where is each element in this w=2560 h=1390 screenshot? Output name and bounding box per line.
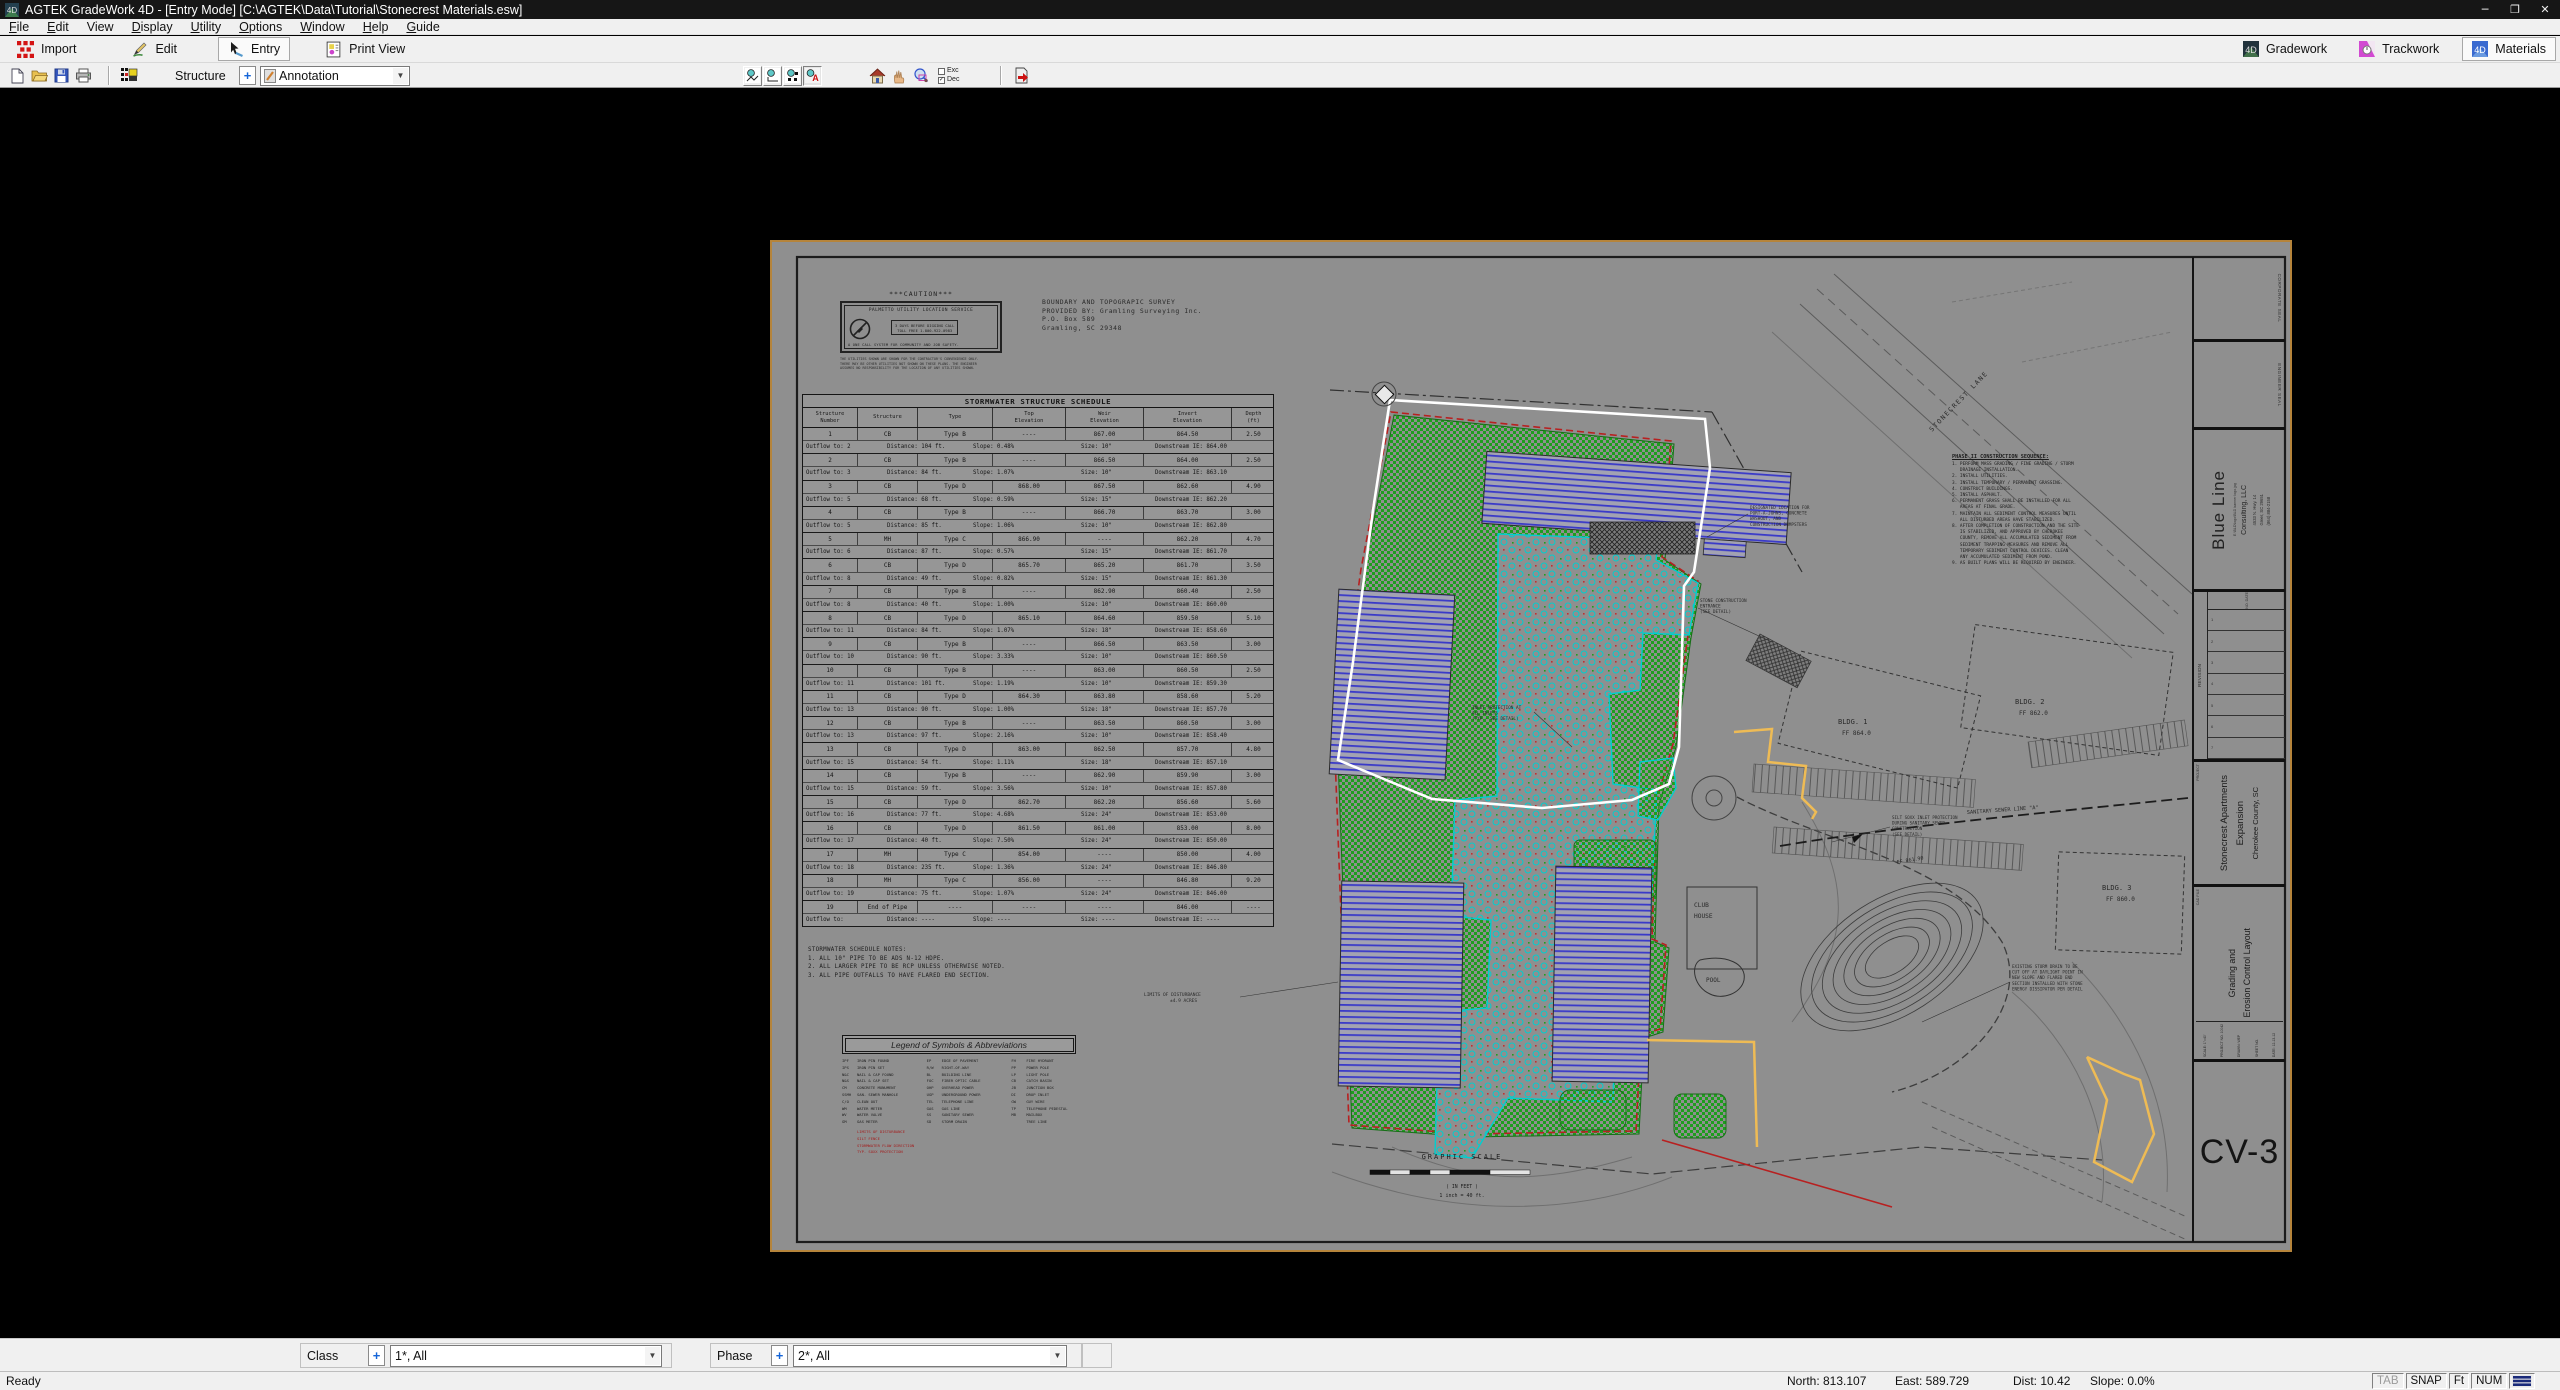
agtek-gradework-window: 4D AGTEK GradeWork 4D - [Entry Mode] [C:… [0,0,2560,1390]
structure-row: 11 CB Type D 864.30 863.80 858.60 5.20 [803,691,1273,704]
chevron-down-icon[interactable]: ▼ [393,68,408,84]
sheet-title-box: CAD FILE Grading and Erosion Control Lay… [2194,887,2285,1062]
menu-item[interactable]: Utility [182,19,231,35]
svg-text:±4.9 ACRES: ±4.9 ACRES [1170,998,1197,1004]
phase2-sequence-note: PHASE II CONSTRUCTION SEQUENCE: 1. PERFO… [1952,454,2192,567]
print-view-button[interactable]: Print View [316,37,414,61]
schedule-title: STORMWATER STRUCTURE SCHEDULE [803,395,1273,408]
outflow-row: Outflow to: 5 Distance: 85 ft. Slope: 1.… [803,520,1273,533]
svg-text:A: A [812,73,819,83]
bldg2-label: BLDG. 2 [2015,698,2045,706]
trackwork-button[interactable]: Trackwork [2350,37,2448,61]
svg-text:HOUSE: HOUSE [1694,913,1713,920]
schedule-header: StructureNumberStructureTypeTopElevation… [803,408,1273,428]
road-label: STONECREST LANE [1928,369,1990,433]
dec-checkbox[interactable]: ✓ [938,77,945,84]
phase-label: Phase [717,1344,752,1367]
chevron-down-icon[interactable]: ▼ [645,1347,660,1365]
window-title: AGTEK GradeWork 4D - [Entry Mode] [C:\AG… [25,3,522,17]
outflow-row: Outflow to: 19 Distance: 75 ft. Slope: 1… [803,888,1273,901]
outflow-row: Outflow to: 11 Distance: 84 ft. Slope: 1… [803,625,1273,638]
exc-dec-toggle[interactable]: Exc ✓Dec [938,67,959,84]
bldg2-ff: FF 862.0 [2019,710,2048,717]
structure-row: 15 CB Type D 862.70 862.20 856.60 5.60 [803,796,1273,809]
svg-text:GRAPHIC SCALE: GRAPHIC SCALE [1422,1153,1503,1161]
view-lines-button[interactable] [743,66,762,86]
view-corner-button[interactable] [763,66,782,86]
add-phase-button[interactable]: + [771,1345,788,1366]
outflow-row: Outflow to: 2 Distance: 104 ft. Slope: 0… [803,441,1273,454]
svg-text:CUT OFF AT DAYLIGHT POINT IN: CUT OFF AT DAYLIGHT POINT IN [2012,970,2083,975]
home-view-button[interactable] [866,65,888,86]
zoom-annotation-icon: A [805,68,820,83]
menu-item[interactable]: View [78,19,123,35]
storm-cut-note: EXISTING STORM DRAIN TO BE [2012,964,2078,969]
structure-row: 17 MH Type C 854.00 ---- 850.00 4.00 [803,849,1273,862]
svg-text:ENTRANCE: ENTRANCE [1700,604,1721,610]
legend-title: Legend of Symbols & Abbreviations [845,1038,1074,1052]
phase-value: 2*, All [798,1349,830,1363]
class-phase-bar: Class + 1*, All ▼ Phase + 2*, All ▼ [0,1338,2560,1371]
project-location: Cherokee County, SC [2251,787,2260,859]
trackwork-icon [2359,41,2375,57]
menu-item[interactable]: Display [123,19,182,35]
svg-text:(SEE DETAIL): (SEE DETAIL) [1700,609,1731,615]
svg-text:1 inch = 40 ft.: 1 inch = 40 ft. [1439,1193,1484,1199]
structure-row: 8 CB Type D 865.10 864.60 859.50 5.10 [803,612,1273,625]
svg-text:4D: 4D [2475,45,2487,55]
edit-button[interactable]: Edit [123,37,186,61]
title-block: CORPORATE SEAL ENGINEER SEAL Blue Line E… [2192,257,2285,1242]
outflow-row: Outflow to: 15 Distance: 54 ft. Slope: 1… [803,757,1273,770]
outflow-row: Outflow to: 3 Distance: 84 ft. Slope: 1.… [803,467,1273,480]
sheet-number: CV-3 [2200,1133,2280,1172]
add-structure-button[interactable]: + [239,66,256,85]
mode-toolbar: Import Edit Entry Print View 4D Gradewor… [0,36,2560,63]
menu-item[interactable]: Help [354,19,398,35]
materials-icon: 4D [2472,41,2488,57]
structure-row: 3 CB Type D 868.00 867.50 862.60 4.90 [803,481,1273,494]
pencil-icon [132,41,148,57]
structure-row: 2 CB Type B ---- 866.50 864.00 2.50 [803,454,1273,467]
limits-note: LIMITS OF DISTURBANCE [1144,992,1201,998]
open-file-button[interactable] [28,65,50,86]
outflow-row: Outflow to: 8 Distance: 40 ft. Slope: 1.… [803,599,1273,612]
class-value: 1*, All [395,1349,427,1363]
structure-row: 9 CB Type B ---- 866.50 863.50 3.00 [803,638,1273,651]
units-toggle[interactable]: Ft [2449,1373,2469,1389]
phase-combobox[interactable]: 2*, All ▼ [793,1345,1067,1367]
outflow-row: Outflow to: Distance: ---- Slope: ---- S… [803,914,1273,927]
menu-bar: FileEditViewDisplayUtilityOptionsWindowH… [0,19,2560,35]
svg-text:4D: 4D [2245,45,2257,55]
project-box: PROJECT Stonecrest Apartments Expansion … [2194,762,2285,887]
view-annotation-button[interactable]: A [803,66,822,86]
maximize-button[interactable]: ❐ [2500,0,2530,19]
stormwater-schedule-table: STORMWATER STRUCTURE SCHEDULE StructureN… [802,394,1274,927]
svg-text:CONSTRUCTION DUMPSTERS: CONSTRUCTION DUMPSTERS [1750,522,1807,528]
firm-name: Blue Line [2209,470,2229,550]
zoom-points-icon [785,68,800,83]
printer-icon [75,68,92,83]
export-button[interactable] [1010,65,1032,86]
corporate-seal-box: CORPORATE SEAL [2194,257,2285,342]
outflow-row: Outflow to: 8 Distance: 49 ft. Slope: 0.… [803,573,1273,586]
title-bar: 4D AGTEK GradeWork 4D - [Entry Mode] [C:… [0,0,2560,19]
toolbar-separator [1000,66,1002,85]
drawing-canvas[interactable]: STONECREST LANE SANITARY SEWER LINE "A" … [0,88,2560,1338]
contour-lines [1775,853,2009,1061]
status-north: North: 813.107 [1787,1372,1866,1390]
annotation-pen-icon [264,69,276,83]
outflow-row: Outflow to: 13 Distance: 90 ft. Slope: 1… [803,704,1273,717]
materials-button[interactable]: 4D Materials [2462,37,2556,61]
open-folder-icon [31,68,48,83]
structure-row: 6 CB Type D 865.70 865.20 861.70 3.50 [803,559,1273,572]
bldg3-label: BLDG. 3 [2102,884,2132,892]
structure-row: 13 CB Type D 863.00 862.50 857.70 4.80 [803,743,1273,756]
stone-entrance-pad [1746,634,1811,688]
survey-note: BOUNDARY AND TOPOGRAPIC SURVEYPROVIDED B… [1042,298,1202,332]
legend-block: Legend of Symbols & Abbreviations IPFIRO… [842,1035,1090,1156]
silt-fence-line [1662,1140,1892,1207]
pan-button[interactable] [888,65,910,86]
bldg1-label: BLDG. 1 [1838,718,1868,726]
svg-text:ALL INLETS: ALL INLETS [1472,711,1498,717]
designated-note: DESIGNATED LOCATION FOR [1750,505,1810,511]
parking-stalls [1752,720,2188,870]
svg-text:CONSTRUCTION: CONSTRUCTION [1892,826,1923,831]
exc-checkbox[interactable] [938,68,945,75]
structure-row: 18 MH Type C 856.00 ---- 846.80 9.20 [803,875,1273,888]
svg-text:NEW SLOPE AND FLARED END: NEW SLOPE AND FLARED END [2012,975,2073,980]
svg-text:(SEE DETAIL): (SEE DETAIL) [1892,832,1922,837]
status-bar: Ready North: 813.107 East: 589.729 Dist:… [0,1371,2560,1390]
outflow-row: Outflow to: 6 Distance: 87 ft. Slope: 0.… [803,546,1273,559]
export-page-icon [1013,67,1030,84]
plan-sheet: STONECREST LANE SANITARY SEWER LINE "A" … [770,240,2292,1252]
clubhouse-label: CLUB [1694,902,1709,909]
structure-row: 5 MH Type C 866.90 ---- 862.20 4.70 [803,533,1273,546]
sheet-number-box: CV-3 [2194,1062,2285,1242]
crosshatch-pad [1590,522,1695,554]
view-points-button[interactable] [783,66,802,86]
menu-item[interactable]: Edit [38,19,78,35]
print-view-icon [325,41,342,58]
close-button[interactable]: ✕ [2530,0,2560,19]
structure-row: 7 CB Type B ---- 862.90 860.40 2.50 [803,586,1273,599]
svg-text:SECTION INSTALLED WITH STONE: SECTION INSTALLED WITH STONE [2012,981,2083,986]
structure-row: 16 CB Type D 861.50 861.00 853.00 8.00 [803,822,1273,835]
import-button[interactable]: Import [8,37,85,61]
svg-text:4D: 4D [7,6,17,15]
layer-combobox[interactable]: Annotation ▼ [260,66,410,86]
toolbar-separator [108,66,110,85]
tab-toggle[interactable]: TAB [2372,1373,2404,1389]
new-file-icon [10,68,25,84]
schedule-notes: STORMWATER SCHEDULE NOTES: 1. ALL 10" PI… [808,946,1005,980]
save-floppy-icon [54,68,69,83]
zoom-window-icon [913,67,930,84]
firm-box: Blue Line E:\BLD\logo\BLD banner logo.jp… [2194,430,2285,592]
outflow-row: Outflow to: 15 Distance: 59 ft. Slope: 3… [803,783,1273,796]
new-file-button[interactable] [6,65,28,86]
snap-toggle[interactable]: SNAP [2406,1373,2447,1389]
entry-cursor-icon [228,41,244,57]
takeoff-grid-icon [121,67,138,84]
window-controls: ─ ❐ ✕ [2470,0,2560,19]
zoom-window-button[interactable] [910,65,932,86]
menu-item[interactable]: File [0,19,38,35]
project-name: Stonecrest Apartments [2219,775,2230,871]
menu-item[interactable]: Window [291,19,353,35]
status-ready: Ready [6,1372,41,1390]
svg-text:ENERGY DISSIPATOR PER DETAIL: ENERGY DISSIPATOR PER DETAIL [2012,986,2083,991]
outflow-row: Outflow to: 11 Distance: 101 ft. Slope: … [803,678,1273,691]
chevron-down-icon[interactable]: ▼ [1050,1347,1065,1365]
firm-logo-path: E:\BLD\logo\BLD banner logo.jpg [2233,483,2237,536]
caution-title: ***CAUTION*** [840,290,1002,298]
minimize-button[interactable]: ─ [2470,0,2500,19]
svg-text:(TYP - SEE DETAIL): (TYP - SEE DETAIL) [1472,716,1519,722]
outflow-row: Outflow to: 18 Distance: 235 ft. Slope: … [803,862,1273,875]
outflow-row: Outflow to: 5 Distance: 68 ft. Slope: 0.… [803,494,1273,507]
hand-icon [891,68,907,84]
schedule-rows: 1 CB Type B ---- 867.00 864.50 2.50 Outf… [803,428,1273,927]
zoom-corner-icon [765,68,780,83]
outflow-row: Outflow to: 13 Distance: 97 ft. Slope: 2… [803,730,1273,743]
svg-text:WASHOUT, AND: WASHOUT, AND [1750,516,1781,522]
structure-row: 19 End of Pipe ---- ---- ---- 846.00 ---… [803,901,1273,914]
menu-item[interactable]: Options [230,19,291,35]
svg-text:DURING SANITARY SEWER: DURING SANITARY SEWER [1892,821,1945,826]
app-icon: 4D [5,3,19,17]
svg-text:PORT-A-JOHNS, CONCRETE: PORT-A-JOHNS, CONCRETE [1750,511,1807,517]
layer-value: Annotation [279,69,339,83]
status-slope: Slope: 0.0% [2090,1372,2155,1390]
caution-block: ***CAUTION*** PALMETTO UTILITY LOCATION … [840,290,1002,371]
gradework-icon: 4D [2243,41,2259,57]
status-east: East: 589.729 [1895,1372,1969,1390]
outflow-row: Outflow to: 17 Distance: 40 ft. Slope: 7… [803,835,1273,848]
inlet-protection-note: INLET PROTECTION AT [1472,705,1522,711]
structure-row: 1 CB Type B ---- 867.00 864.50 2.50 [803,428,1273,441]
menu-item[interactable]: Guide [397,19,448,35]
takeoff-settings-button[interactable] [118,65,140,86]
no-dig-icon [849,318,871,344]
outflow-row: Outflow to: 16 Distance: 77 ft. Slope: 4… [803,809,1273,822]
clubhouse-area [1687,776,1757,996]
structure-label: Structure [175,63,226,88]
print-button[interactable] [72,65,94,86]
class-combobox[interactable]: 1*, All ▼ [390,1345,662,1367]
entry-button[interactable]: Entry [218,37,290,61]
structure-row: 14 CB Type B ---- 862.90 859.90 3.00 [803,770,1273,783]
silt-soxx-note: SILT SOXX INLET PROTECTION [1892,815,1958,820]
zoom-lines-icon [745,68,760,83]
entry-toolbar: Structure + Annotation ▼ A Exc ✓Dec [0,63,2560,88]
stone-entrance-note: STONE CONSTRUCTION [1700,598,1747,604]
home-icon [869,68,886,84]
revision-box: REVISION NO. DATE 1234567 [2194,592,2285,762]
class-label: Class [307,1344,338,1367]
svg-text:( IN FEET ): ( IN FEET ) [1446,1184,1478,1190]
save-button[interactable] [50,65,72,86]
status-dist: Dist: 10.42 [2013,1372,2070,1390]
bldg1-ff: FF 864.0 [1842,730,1871,737]
outflow-row: Outflow to: 10 Distance: 90 ft. Slope: 3… [803,651,1273,664]
spare-cell [1082,1343,1112,1368]
structure-row: 10 CB Type B ---- 863.00 860.50 2.50 [803,665,1273,678]
import-icon [17,41,34,58]
structure-row: 12 CB Type B ---- 863.50 860.50 3.00 [803,717,1273,730]
gradework-button[interactable]: 4D Gradework [2234,37,2336,61]
num-lock-indicator[interactable]: NUM [2471,1373,2507,1389]
add-class-button[interactable]: + [368,1345,385,1366]
pool-label: POOL [1706,977,1721,984]
engineer-seal-box: ENGINEER SEAL [2194,342,2285,430]
structure-row: 4 CB Type B ---- 866.70 863.70 3.00 [803,507,1273,520]
bldg3-ff: FF 860.0 [2106,896,2135,903]
sheet-title: Grading and [2227,949,2237,997]
grip-icon [2509,1373,2535,1389]
module-buttons: 4D Gradework Trackwork 4D Materials [2234,37,2556,61]
